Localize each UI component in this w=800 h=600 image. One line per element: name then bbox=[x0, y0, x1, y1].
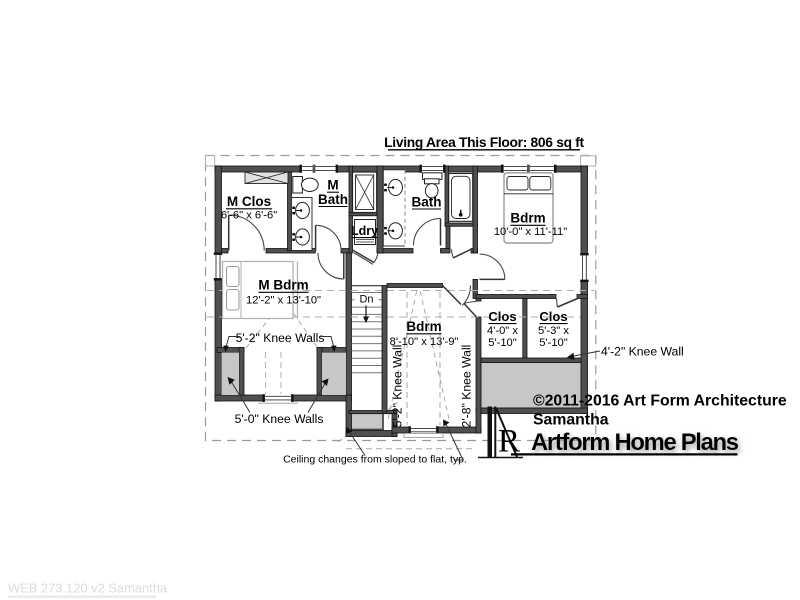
svg-text:M Bdrm: M Bdrm bbox=[258, 278, 308, 293]
svg-text:Dn: Dn bbox=[359, 294, 373, 306]
svg-text:Ldry: Ldry bbox=[351, 224, 378, 238]
svg-text:M: M bbox=[327, 178, 338, 193]
svg-text:5'-10": 5'-10" bbox=[539, 337, 568, 349]
svg-text:WEB 273.120 v2 Samantha: WEB 273.120 v2 Samantha bbox=[8, 581, 168, 596]
svg-text:Clos: Clos bbox=[488, 309, 516, 324]
svg-text:5'-10": 5'-10" bbox=[488, 337, 517, 349]
svg-text:4'-2" Knee Wall: 4'-2" Knee Wall bbox=[601, 345, 684, 359]
svg-text:Bath: Bath bbox=[412, 194, 442, 209]
svg-text:5'-2" Knee Walls: 5'-2" Knee Walls bbox=[236, 331, 325, 345]
svg-text:Bdrm: Bdrm bbox=[510, 211, 545, 226]
svg-text:©2011-2016 Art Form Architectu: ©2011-2016 Art Form Architecture bbox=[533, 393, 787, 410]
svg-text:12'-2" x 13'-10": 12'-2" x 13'-10" bbox=[246, 294, 321, 306]
svg-text:5'-3" x: 5'-3" x bbox=[538, 325, 569, 337]
svg-text:5'-0" Knee Walls: 5'-0" Knee Walls bbox=[235, 412, 324, 426]
svg-text:2'-8" Knee Wall: 2'-8" Knee Wall bbox=[460, 345, 474, 428]
svg-text:Living Area This Floor: 806 sq: Living Area This Floor: 806 sq ft bbox=[384, 135, 584, 150]
svg-text:Clos: Clos bbox=[539, 309, 567, 324]
svg-text:Ceiling changes from sloped to: Ceiling changes from sloped to flat, typ… bbox=[283, 454, 467, 466]
svg-text:5'-2" Knee Wall: 5'-2" Knee Wall bbox=[391, 345, 405, 428]
svg-text:Samantha: Samantha bbox=[533, 412, 609, 429]
svg-text:10'-0" x 11'-11": 10'-0" x 11'-11" bbox=[494, 226, 567, 238]
svg-text:Bath: Bath bbox=[318, 192, 348, 207]
svg-text:4'-0" x: 4'-0" x bbox=[487, 325, 518, 337]
svg-text:M Clos: M Clos bbox=[227, 194, 271, 209]
svg-text:6'-6" x 6'-6": 6'-6" x 6'-6" bbox=[221, 210, 277, 222]
svg-text:Artform Home Plans: Artform Home Plans bbox=[531, 429, 739, 456]
svg-text:Bdrm: Bdrm bbox=[406, 319, 441, 334]
